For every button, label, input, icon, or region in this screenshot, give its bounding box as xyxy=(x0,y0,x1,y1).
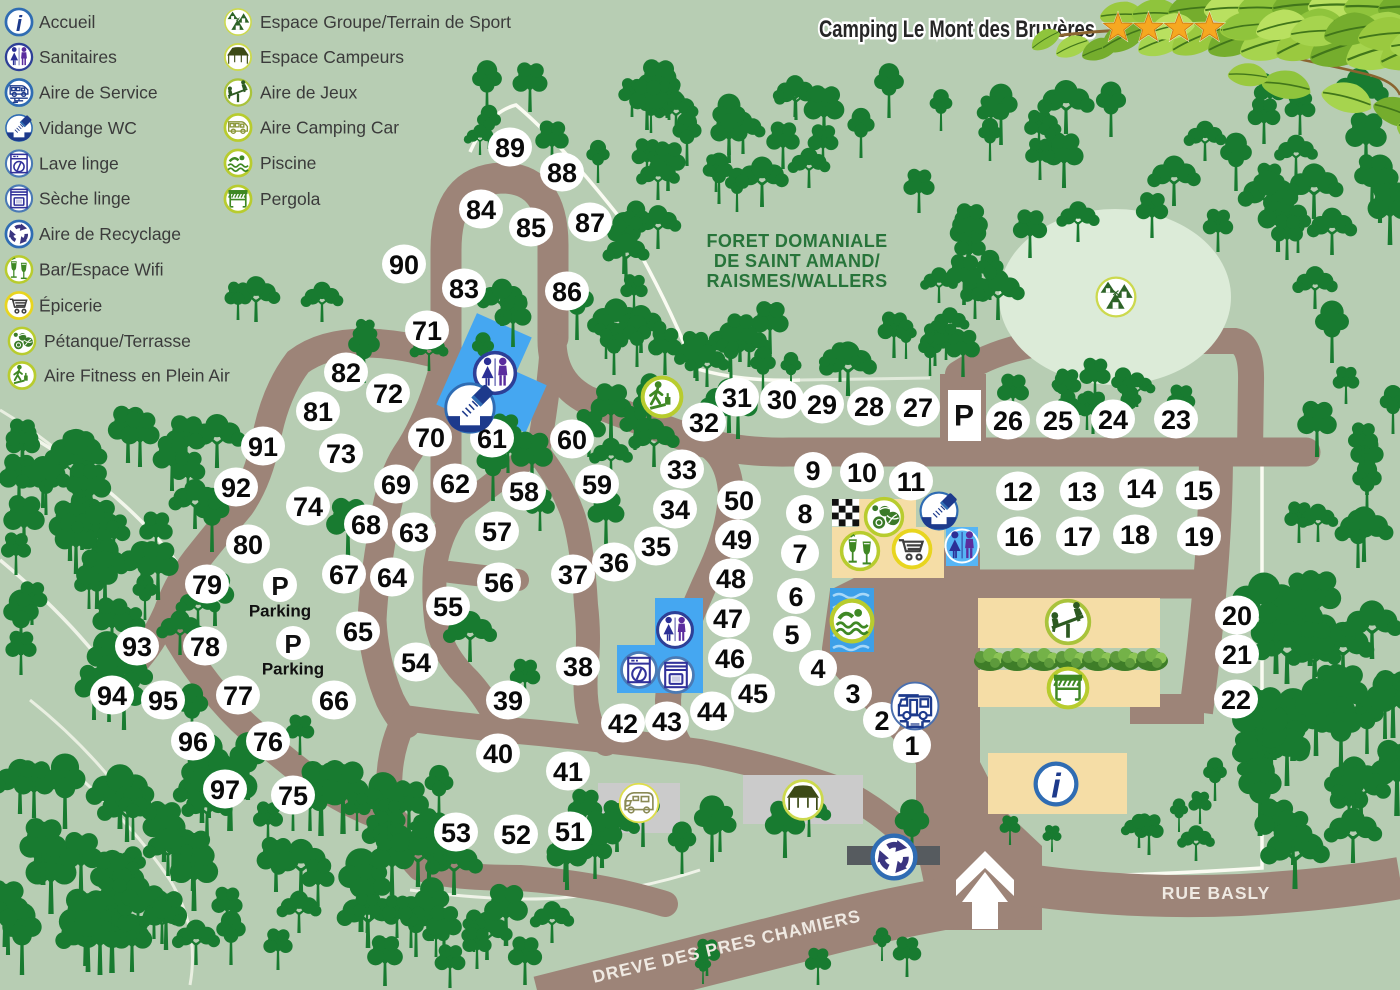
svg-text:12: 12 xyxy=(1003,477,1033,507)
svg-text:81: 81 xyxy=(303,397,333,427)
svg-text:33: 33 xyxy=(667,455,697,485)
svg-text:87: 87 xyxy=(575,208,605,238)
svg-text:6: 6 xyxy=(788,582,803,612)
svg-text:DE SAINT AMAND/: DE SAINT AMAND/ xyxy=(714,251,880,271)
svg-text:82: 82 xyxy=(331,358,361,388)
svg-text:74: 74 xyxy=(293,492,323,522)
svg-text:39: 39 xyxy=(493,686,523,716)
svg-text:32: 32 xyxy=(689,408,719,438)
svg-text:88: 88 xyxy=(547,158,577,188)
svg-text:66: 66 xyxy=(319,686,349,716)
svg-text:97: 97 xyxy=(210,775,240,805)
svg-text:Accueil: Accueil xyxy=(39,12,95,32)
svg-text:58: 58 xyxy=(509,477,539,507)
svg-text:53: 53 xyxy=(441,818,471,848)
svg-text:14: 14 xyxy=(1126,474,1156,504)
svg-text:86: 86 xyxy=(552,277,582,307)
svg-text:8: 8 xyxy=(797,499,812,529)
svg-text:70: 70 xyxy=(415,423,445,453)
svg-text:Sanitaires: Sanitaires xyxy=(39,47,117,67)
svg-text:47: 47 xyxy=(713,604,743,634)
svg-text:89: 89 xyxy=(495,133,525,163)
svg-text:84: 84 xyxy=(466,195,496,225)
svg-text:22: 22 xyxy=(1221,685,1251,715)
svg-text:72: 72 xyxy=(373,379,403,409)
svg-text:10: 10 xyxy=(847,458,877,488)
svg-text:27: 27 xyxy=(903,393,933,423)
svg-text:50: 50 xyxy=(724,486,754,516)
svg-text:30: 30 xyxy=(767,385,797,415)
svg-text:41: 41 xyxy=(553,757,583,787)
svg-text:48: 48 xyxy=(716,564,746,594)
svg-text:38: 38 xyxy=(563,652,593,682)
svg-text:45: 45 xyxy=(738,679,768,709)
svg-text:68: 68 xyxy=(351,510,381,540)
svg-text:42: 42 xyxy=(608,709,638,739)
svg-text:11: 11 xyxy=(897,467,926,497)
svg-text:FORET DOMANIALE: FORET DOMANIALE xyxy=(707,231,888,251)
svg-text:54: 54 xyxy=(401,648,431,678)
svg-text:79: 79 xyxy=(192,570,222,600)
svg-text:Pétanque/Terrasse: Pétanque/Terrasse xyxy=(44,331,191,351)
svg-text:9: 9 xyxy=(805,456,820,486)
svg-text:57: 57 xyxy=(482,517,512,547)
svg-text:Aire de Jeux: Aire de Jeux xyxy=(260,83,358,103)
svg-text:75: 75 xyxy=(278,781,308,811)
svg-text:RUE BASLY: RUE BASLY xyxy=(1162,883,1271,903)
svg-text:73: 73 xyxy=(326,439,356,469)
svg-text:16: 16 xyxy=(1004,522,1034,552)
svg-text:Aire Camping Car: Aire Camping Car xyxy=(260,118,399,138)
svg-text:Espace Groupe/Terrain de Sport: Espace Groupe/Terrain de Sport xyxy=(260,12,511,32)
svg-text:52: 52 xyxy=(501,820,531,850)
svg-text:60: 60 xyxy=(557,425,587,455)
svg-text:93: 93 xyxy=(122,632,152,662)
svg-text:36: 36 xyxy=(599,548,629,578)
svg-text:29: 29 xyxy=(807,390,837,420)
svg-text:67: 67 xyxy=(329,560,359,590)
svg-text:P: P xyxy=(954,400,974,433)
svg-text:56: 56 xyxy=(484,568,514,598)
svg-text:90: 90 xyxy=(389,250,419,280)
svg-text:95: 95 xyxy=(148,686,178,716)
svg-text:49: 49 xyxy=(722,525,752,555)
svg-text:62: 62 xyxy=(440,469,470,499)
svg-text:44: 44 xyxy=(697,697,727,727)
svg-text:63: 63 xyxy=(399,518,429,548)
svg-text:25: 25 xyxy=(1043,406,1073,436)
svg-text:51: 51 xyxy=(555,817,585,847)
svg-text:37: 37 xyxy=(558,560,588,590)
svg-text:17: 17 xyxy=(1063,522,1093,552)
svg-text:96: 96 xyxy=(178,727,208,757)
svg-text:80: 80 xyxy=(233,530,263,560)
svg-text:Vidange WC: Vidange WC xyxy=(39,118,137,138)
svg-text:24: 24 xyxy=(1098,405,1128,435)
svg-text:76: 76 xyxy=(253,727,283,757)
svg-text:77: 77 xyxy=(223,681,253,711)
svg-text:34: 34 xyxy=(660,495,690,525)
svg-text:92: 92 xyxy=(221,473,251,503)
svg-text:Aire de Recyclage: Aire de Recyclage xyxy=(39,224,181,244)
svg-text:Parking: Parking xyxy=(262,660,324,679)
svg-text:26: 26 xyxy=(993,406,1023,436)
svg-text:69: 69 xyxy=(381,470,411,500)
svg-text:21: 21 xyxy=(1222,640,1252,670)
svg-text:1: 1 xyxy=(904,731,919,761)
svg-text:71: 71 xyxy=(412,316,442,346)
svg-text:64: 64 xyxy=(377,563,407,593)
svg-text:23: 23 xyxy=(1161,405,1191,435)
svg-text:Parking: Parking xyxy=(249,602,311,621)
svg-text:P: P xyxy=(284,629,301,659)
svg-text:Épicerie: Épicerie xyxy=(39,296,102,316)
svg-text:18: 18 xyxy=(1120,520,1150,550)
svg-text:Aire de Service: Aire de Service xyxy=(39,83,158,103)
svg-text:55: 55 xyxy=(433,592,463,622)
svg-text:83: 83 xyxy=(449,274,479,304)
svg-text:78: 78 xyxy=(190,632,220,662)
svg-text:Lave linge: Lave linge xyxy=(39,154,119,174)
svg-text:40: 40 xyxy=(483,739,513,769)
svg-text:Pergola: Pergola xyxy=(260,189,321,209)
svg-text:3: 3 xyxy=(845,679,860,709)
svg-text:Sèche linge: Sèche linge xyxy=(39,189,130,209)
svg-text:65: 65 xyxy=(343,617,373,647)
svg-text:91: 91 xyxy=(248,432,278,462)
svg-text:7: 7 xyxy=(792,539,807,569)
svg-text:4: 4 xyxy=(810,654,825,684)
svg-text:15: 15 xyxy=(1183,476,1213,506)
svg-text:P: P xyxy=(271,571,288,601)
svg-text:5: 5 xyxy=(784,620,799,650)
svg-text:31: 31 xyxy=(722,383,752,413)
svg-text:85: 85 xyxy=(516,213,546,243)
svg-text:2: 2 xyxy=(874,706,889,736)
svg-text:28: 28 xyxy=(854,392,884,422)
svg-text:19: 19 xyxy=(1184,522,1214,552)
svg-text:43: 43 xyxy=(652,707,682,737)
svg-text:Espace Campeurs: Espace Campeurs xyxy=(260,47,404,67)
svg-text:46: 46 xyxy=(715,644,745,674)
svg-text:59: 59 xyxy=(582,470,612,500)
svg-text:35: 35 xyxy=(641,532,671,562)
svg-text:13: 13 xyxy=(1067,477,1097,507)
svg-text:20: 20 xyxy=(1222,601,1252,631)
svg-text:RAISMES/WALLERS: RAISMES/WALLERS xyxy=(706,271,887,291)
svg-text:Piscine: Piscine xyxy=(260,153,316,173)
svg-text:94: 94 xyxy=(97,681,127,711)
svg-text:Aire Fitness en Plein Air: Aire Fitness en Plein Air xyxy=(44,366,230,386)
svg-text:Bar/Espace Wifi: Bar/Espace Wifi xyxy=(39,260,163,280)
